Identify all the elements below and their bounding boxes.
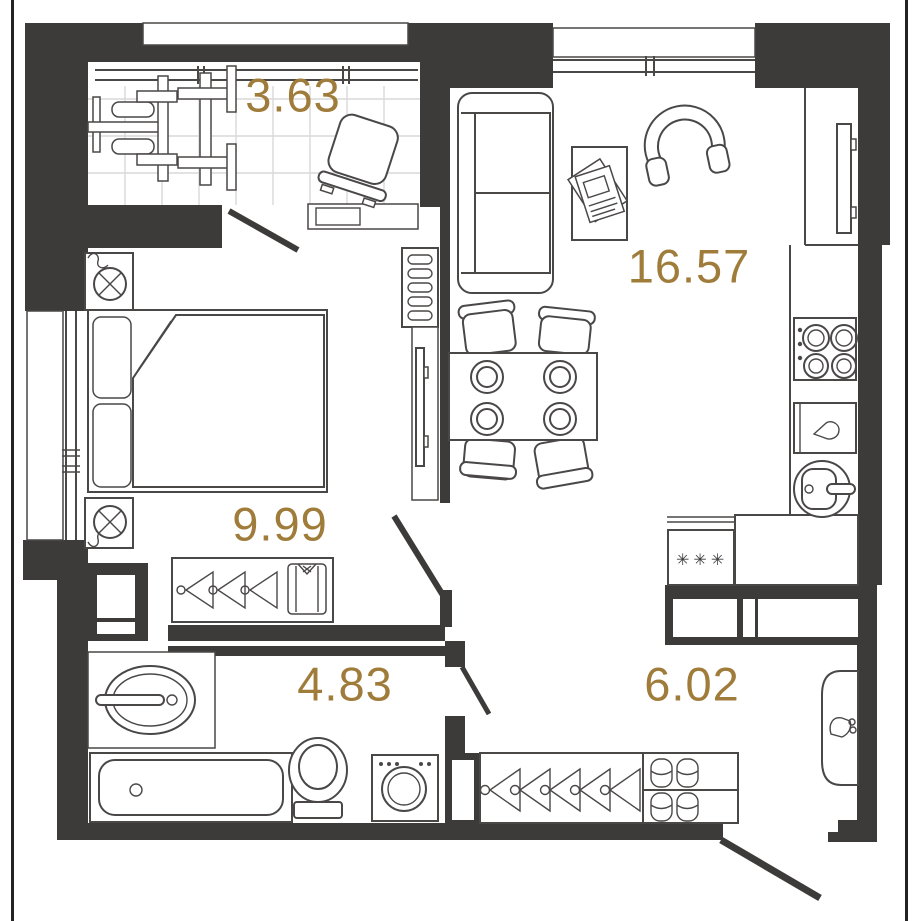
pillow-icon [93, 404, 131, 487]
closet-cell [758, 599, 858, 637]
washing-machine-icon [372, 755, 438, 821]
area-label-living-kitchen: 16.57 [628, 243, 751, 290]
wardrobe-side-panel [452, 760, 474, 820]
vent-shaft-opening [97, 575, 135, 618]
plate-icon [471, 403, 503, 435]
area-label-hallway: 6.02 [644, 661, 739, 708]
nightstand [85, 498, 133, 548]
hob-icon [794, 318, 857, 380]
plate-icon [471, 361, 503, 393]
doorbell-panel-icon [822, 671, 858, 785]
boundary-line-left [11, 0, 14, 921]
vent-shaft-opening [97, 622, 135, 634]
vanity-sink-icon [88, 652, 215, 748]
loggia-threshold [308, 204, 418, 229]
kitchen-base-cabinet [794, 403, 856, 453]
closet-cell [743, 599, 755, 637]
plate-icon [544, 403, 576, 435]
sofa-icon [458, 93, 553, 293]
dining-chair-icon [535, 306, 595, 356]
bathtub-icon [90, 753, 292, 822]
loggia-door-swing [229, 211, 298, 250]
area-label-bathroom: 4.83 [297, 661, 392, 708]
area-label-loggia: 3.63 [245, 72, 340, 119]
fridge-icon: ✳✳✳ [668, 530, 734, 585]
kitchen-sink-icon [794, 461, 855, 517]
hall-wardrobe-icon [480, 753, 738, 823]
armchair-icon [635, 98, 730, 187]
exercise-machine-icon [88, 66, 236, 190]
lounge-chair-icon [315, 110, 407, 210]
nightstand [85, 253, 133, 310]
boundary-line-right [905, 0, 908, 921]
dining-table-icon [449, 353, 597, 440]
radiator-icon [402, 248, 438, 327]
bedroom-wardrobe-icon [172, 558, 333, 622]
dining-chair-icon [458, 300, 520, 356]
lamp-icon [94, 506, 126, 538]
folded-shirt-icon [288, 564, 326, 614]
closet-cell [673, 599, 737, 637]
floor-plan: ✳✳✳ [0, 0, 921, 921]
area-label-bedroom: 9.99 [232, 501, 327, 548]
pillow-icon [93, 317, 131, 398]
living-room-window [553, 28, 755, 76]
dining-chair-icon [530, 435, 593, 489]
freezer-marking: ✳✳✳ [676, 552, 728, 569]
floor-plan-drawing: ✳✳✳ [0, 0, 921, 921]
bedroom-tv-icon [412, 327, 438, 500]
bedroom-door-swing [394, 516, 444, 597]
tv-icon [837, 124, 856, 233]
coffee-table-icon [568, 147, 627, 240]
bathroom-door-swing [462, 667, 489, 714]
lamp-icon [94, 268, 126, 300]
toilet-icon [289, 738, 347, 818]
entrance-door-swing [721, 840, 820, 898]
plate-icon [544, 361, 576, 393]
dining-chair-icon [460, 438, 519, 481]
bedroom-window [27, 311, 80, 540]
double-bed-icon [88, 310, 327, 492]
